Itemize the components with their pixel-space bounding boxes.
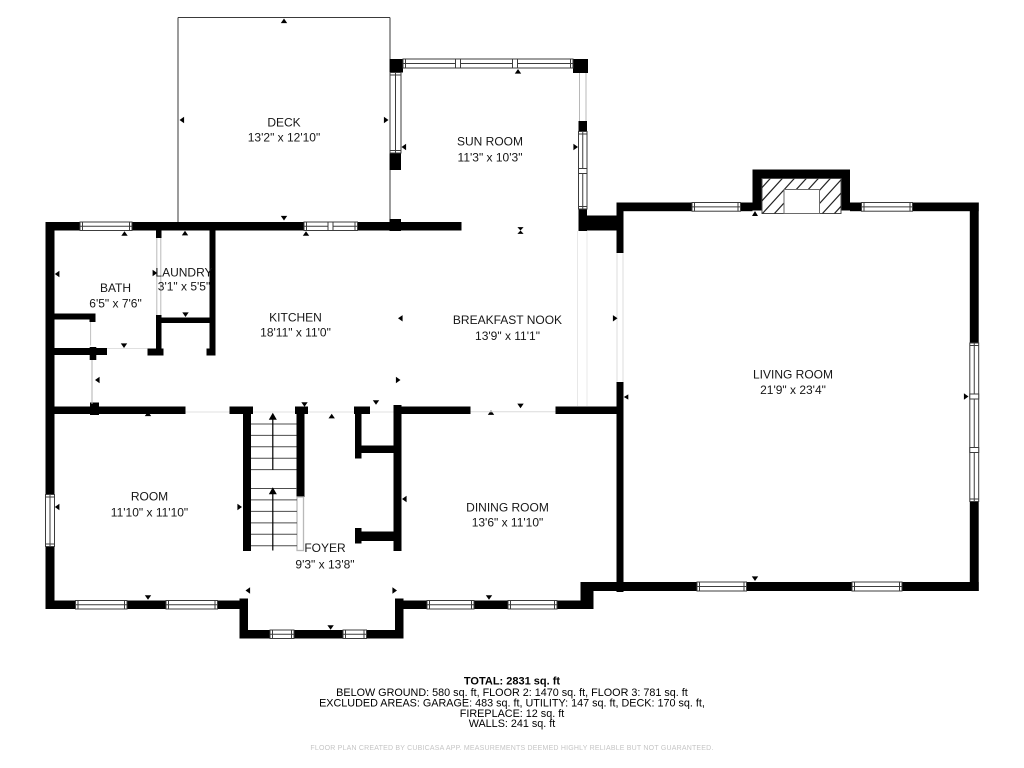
svg-text:BATH: BATH bbox=[100, 281, 131, 295]
svg-text:11'10" x 11'10": 11'10" x 11'10" bbox=[111, 506, 188, 520]
svg-text:BREAKFAST NOOK: BREAKFAST NOOK bbox=[453, 313, 562, 327]
svg-text:18'11" x 11'0": 18'11" x 11'0" bbox=[260, 325, 331, 339]
svg-text:SUN ROOM: SUN ROOM bbox=[457, 134, 523, 148]
svg-text:13'6" x 11'10": 13'6" x 11'10" bbox=[472, 516, 544, 530]
svg-text:21'9" x 23'4": 21'9" x 23'4" bbox=[760, 383, 826, 397]
svg-text:LIVING ROOM: LIVING ROOM bbox=[753, 368, 833, 382]
svg-text:FOYER: FOYER bbox=[304, 541, 346, 555]
svg-text:6'5" x 7'6": 6'5" x 7'6" bbox=[89, 297, 141, 311]
svg-text:13'2" x 12'10": 13'2" x 12'10" bbox=[248, 131, 321, 145]
svg-text:9'3" x 13'8": 9'3" x 13'8" bbox=[295, 558, 354, 572]
svg-text:13'9" x 11'1": 13'9" x 11'1" bbox=[475, 329, 540, 343]
svg-text:3'1" x 5'5": 3'1" x 5'5" bbox=[158, 280, 210, 294]
svg-text:LAUNDRY: LAUNDRY bbox=[155, 266, 212, 280]
svg-text:DECK: DECK bbox=[267, 115, 300, 129]
svg-text:TOTAL: 2831 sq. ft: TOTAL: 2831 sq. ft bbox=[464, 676, 561, 688]
svg-text:11'3" x 10'3": 11'3" x 10'3" bbox=[458, 151, 523, 165]
svg-text:FLOOR PLAN CREATED BY CUBICASA: FLOOR PLAN CREATED BY CUBICASA APP. MEAS… bbox=[310, 745, 713, 752]
svg-text:KITCHEN: KITCHEN bbox=[269, 311, 322, 325]
svg-text:ROOM: ROOM bbox=[131, 490, 168, 504]
svg-text:DINING ROOM: DINING ROOM bbox=[466, 501, 549, 515]
svg-text:WALLS: 241 sq. ft: WALLS: 241 sq. ft bbox=[469, 718, 556, 730]
